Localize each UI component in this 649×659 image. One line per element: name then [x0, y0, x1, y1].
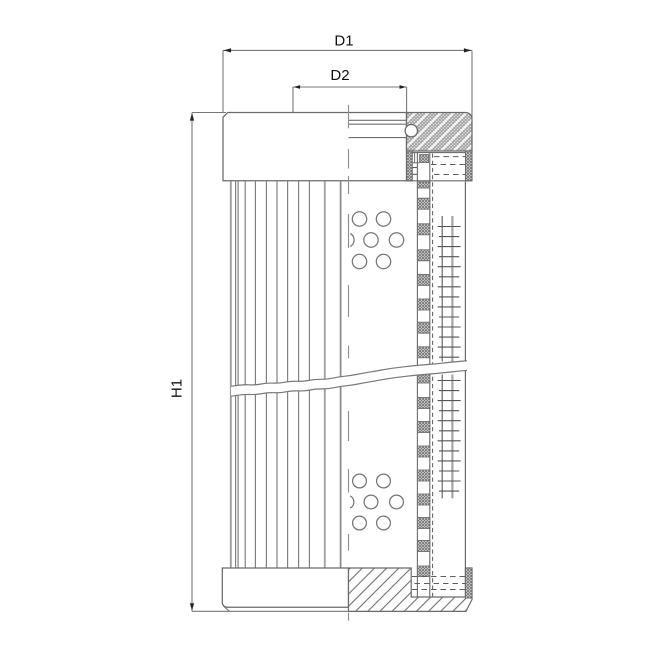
svg-text:D2: D2	[330, 67, 349, 84]
svg-text:D1: D1	[334, 33, 353, 50]
svg-text:H1: H1	[169, 379, 186, 398]
